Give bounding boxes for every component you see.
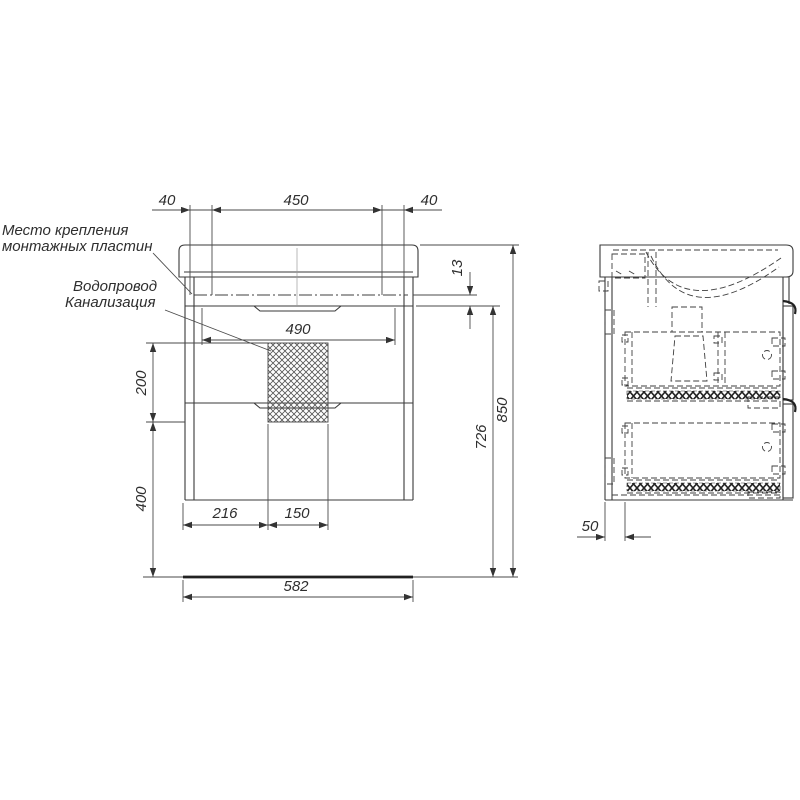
dim-inner-width: 490 bbox=[285, 321, 311, 338]
drawer1-front-edge bbox=[783, 306, 793, 400]
slide-rail-2 bbox=[627, 483, 780, 491]
drain-fitting bbox=[672, 307, 702, 332]
dim-drain-width: 150 bbox=[284, 505, 310, 522]
dim-top-left-offset: 40 bbox=[159, 192, 176, 209]
drawer2-box bbox=[625, 423, 780, 478]
mounting-bracket bbox=[612, 254, 645, 278]
dim-lower-height: 400 bbox=[133, 486, 150, 512]
label-sewerage: Канализация bbox=[65, 294, 156, 311]
dimensions-side: 50 bbox=[577, 502, 651, 541]
slide-rail-1 bbox=[627, 391, 780, 399]
dim-back-clearance: 50 bbox=[582, 518, 599, 535]
siphon bbox=[671, 336, 707, 381]
dim-mounting-height: 726 bbox=[473, 424, 490, 450]
annotations: Место крепления монтажных пластин Водопр… bbox=[2, 222, 271, 351]
label-mounting-plates-line1: Место крепления bbox=[2, 222, 128, 239]
side-handle-2 bbox=[783, 399, 796, 412]
sink-bowl-curve bbox=[646, 252, 781, 291]
label-water-supply: Водопровод bbox=[73, 278, 157, 295]
dim-service-height: 200 bbox=[133, 370, 150, 397]
dim-drain-offset: 216 bbox=[211, 505, 238, 522]
dim-top-inset: 13 bbox=[449, 259, 466, 276]
label-mounting-plates-line2: монтажных пластин bbox=[2, 238, 152, 255]
drawing-canvas: Место крепления монтажных пластин Водопр… bbox=[0, 0, 800, 800]
plumbing-hatch-area bbox=[268, 343, 328, 422]
drawer1-box bbox=[625, 332, 780, 386]
side-view bbox=[599, 245, 796, 500]
dim-overall-height: 850 bbox=[494, 397, 511, 423]
drawer2-front-edge bbox=[783, 404, 793, 498]
dim-top-center: 450 bbox=[283, 192, 309, 209]
leader-mounting bbox=[153, 253, 192, 294]
leader-plumbing bbox=[165, 310, 271, 351]
technical-drawing: Место крепления монтажных пластин Водопр… bbox=[0, 0, 800, 800]
drawer1-handle bbox=[254, 306, 341, 311]
side-handle-1 bbox=[783, 301, 796, 314]
dim-top-right-offset: 40 bbox=[421, 192, 438, 209]
dim-overall-width: 582 bbox=[283, 578, 309, 595]
